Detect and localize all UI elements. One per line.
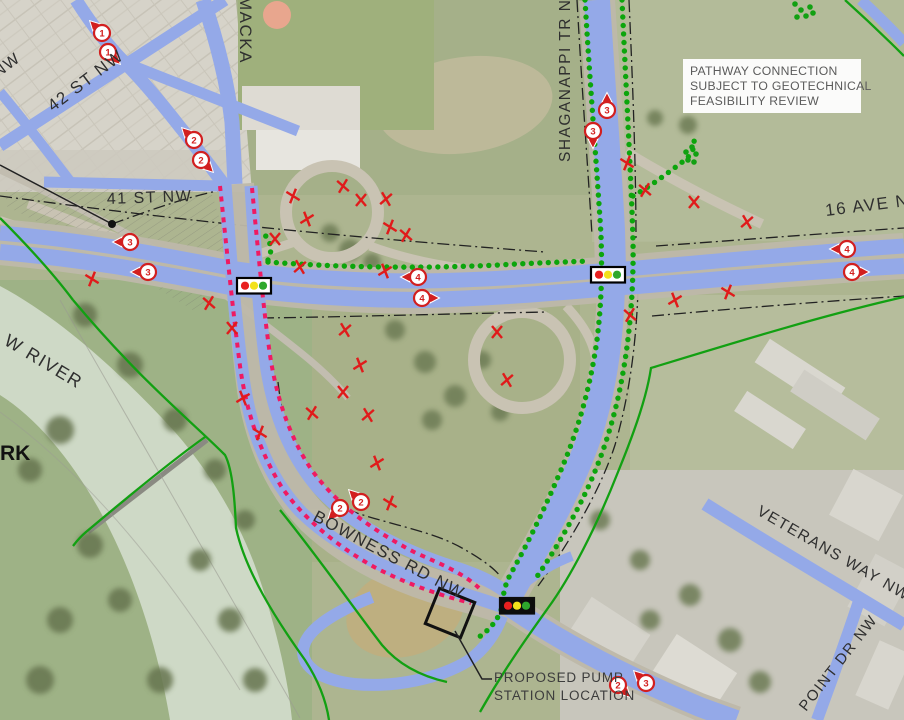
- traffic-signal: [500, 598, 534, 614]
- interchange-plan-map: 1122333344442223 42 ST NW NW 41 ST NW MA…: [0, 0, 904, 720]
- pump-note-line1: PROPOSED PUMP: [494, 670, 624, 685]
- pathway-dot: [792, 1, 798, 7]
- pathway-dot: [693, 151, 699, 157]
- pathway-dot: [683, 149, 689, 155]
- route-marker-number: 2: [198, 155, 203, 166]
- route-marker-number: 3: [590, 126, 595, 137]
- route-marker-number: 4: [844, 244, 850, 255]
- rail-node-dot: [108, 220, 116, 228]
- pathway-dot: [794, 14, 800, 20]
- label-mackay: MACKA: [236, 0, 255, 64]
- traffic-signal: [591, 267, 625, 283]
- route-marker-number: 4: [415, 272, 421, 283]
- label-shaganappi: SHAGANAPPI TR NW: [557, 0, 574, 162]
- route-marker-number: 4: [419, 293, 425, 304]
- pathway-note-line3: FEASIBILITY REVIEW: [690, 94, 819, 108]
- label-park: RK: [0, 442, 30, 465]
- road-41st: [44, 182, 221, 186]
- pathway-note: PATHWAY CONNECTION SUBJECT TO GEOTECHNIC…: [683, 59, 872, 113]
- pathway-dot: [691, 159, 697, 165]
- pathway-dot: [798, 7, 804, 13]
- pathway-dot: [803, 13, 809, 19]
- pathway-dot: [685, 157, 691, 163]
- route-marker-number: 3: [643, 678, 648, 689]
- pump-note-line2: STATION LOCATION: [494, 688, 635, 703]
- baseball-diamond: [263, 1, 291, 29]
- pathway-note-line1: PATHWAY CONNECTION: [690, 64, 838, 78]
- route-marker-number: 3: [145, 267, 150, 278]
- route-marker-number: 2: [191, 135, 196, 146]
- route-marker-number: 3: [127, 237, 132, 248]
- route-marker-number: 3: [604, 105, 609, 116]
- pathway-dot: [807, 4, 813, 10]
- label-41-st: 41 ST NW: [107, 188, 193, 208]
- route-marker-number: 1: [99, 28, 105, 39]
- route-marker-number: 4: [849, 267, 855, 278]
- map-canvas: 1122333344442223 42 ST NW NW 41 ST NW MA…: [0, 0, 904, 720]
- route-marker-number: 2: [358, 497, 363, 508]
- pathway-dot: [689, 144, 695, 150]
- pathway-dot: [810, 10, 816, 16]
- route-marker-number: 2: [337, 503, 342, 514]
- traffic-signal: [237, 278, 271, 294]
- pathway-note-line2: SUBJECT TO GEOTECHNICAL: [690, 79, 872, 93]
